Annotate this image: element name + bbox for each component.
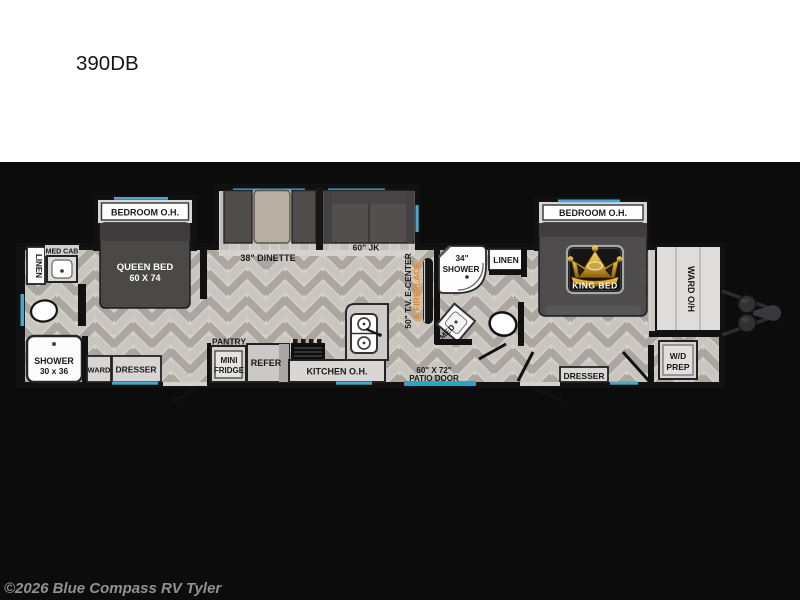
- svg-text:W/D: W/D: [670, 351, 687, 361]
- svg-text:KING BED: KING BED: [572, 281, 618, 291]
- svg-text:& FIREPLACE: & FIREPLACE: [412, 262, 422, 319]
- svg-text:DRESSER: DRESSER: [115, 365, 156, 375]
- svg-text:KITCHEN O.H.: KITCHEN O.H.: [306, 367, 367, 377]
- svg-text:MINI: MINI: [221, 356, 238, 365]
- svg-text:PREP: PREP: [666, 362, 689, 372]
- svg-text:FRIDGE: FRIDGE: [214, 366, 245, 375]
- svg-text:38" DINETTE: 38" DINETTE: [240, 253, 295, 263]
- svg-text:QUEEN BED: QUEEN BED: [117, 262, 174, 273]
- svg-text:BEDROOM O.H.: BEDROOM O.H.: [559, 208, 627, 218]
- svg-text:60 X 74: 60 X 74: [129, 273, 160, 283]
- svg-text:LINEN: LINEN: [34, 254, 43, 278]
- svg-text:DRESSER: DRESSER: [563, 371, 604, 381]
- svg-text:LINEN: LINEN: [493, 255, 519, 265]
- svg-text:WARD O/H: WARD O/H: [686, 266, 696, 312]
- svg-text:30 x 36: 30 x 36: [40, 366, 69, 376]
- svg-text:MED CAB: MED CAB: [46, 249, 79, 256]
- svg-text:REFER: REFER: [251, 358, 282, 368]
- svg-text:SHOWER: SHOWER: [34, 356, 74, 366]
- svg-text:SHOWER: SHOWER: [443, 265, 480, 274]
- svg-text:BEDROOM O.H.: BEDROOM O.H.: [111, 208, 179, 218]
- svg-text:34": 34": [456, 254, 469, 263]
- svg-text:60" JK: 60" JK: [353, 243, 381, 253]
- svg-text:WARD: WARD: [88, 366, 111, 375]
